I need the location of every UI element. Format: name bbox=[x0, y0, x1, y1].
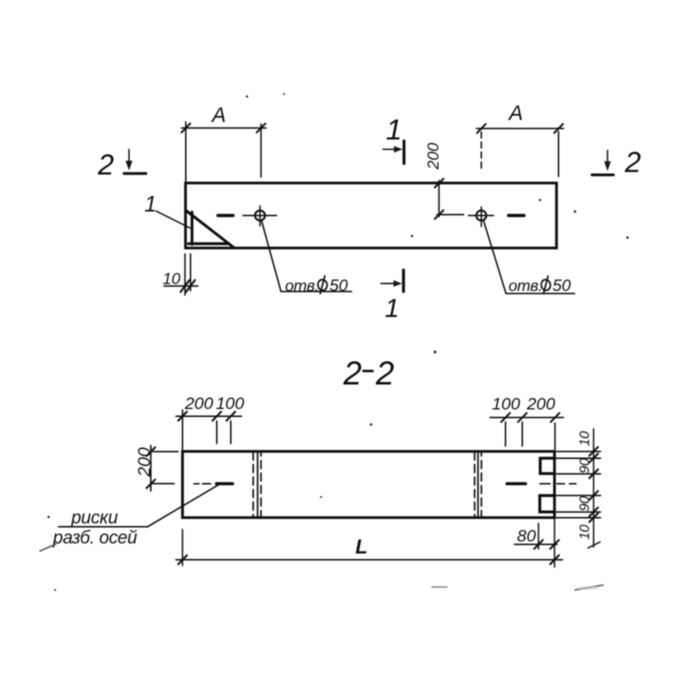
svg-text:10: 10 bbox=[576, 524, 592, 539]
svg-text:L: L bbox=[355, 537, 367, 559]
svg-text:отв.: отв. bbox=[285, 278, 319, 295]
svg-text:1: 1 bbox=[144, 192, 156, 217]
svg-text:90: 90 bbox=[576, 496, 592, 511]
svg-text:2: 2 bbox=[342, 355, 361, 392]
svg-text:10: 10 bbox=[163, 271, 181, 288]
svg-text:1: 1 bbox=[386, 115, 402, 147]
svg-text:200: 200 bbox=[526, 395, 556, 414]
svg-text:200: 200 bbox=[134, 447, 154, 477]
svg-text:2: 2 bbox=[375, 355, 394, 392]
svg-text:2: 2 bbox=[624, 147, 641, 179]
svg-text:50: 50 bbox=[553, 277, 572, 295]
svg-text:риски: риски bbox=[70, 508, 118, 528]
svg-text:отв.: отв. bbox=[509, 278, 543, 295]
svg-text:A: A bbox=[210, 104, 226, 127]
svg-text:200: 200 bbox=[426, 143, 443, 171]
svg-text:100: 100 bbox=[216, 394, 245, 413]
svg-text:80: 80 bbox=[517, 527, 536, 546]
svg-text:A: A bbox=[507, 102, 523, 125]
svg-text:разб. осей: разб. осей bbox=[52, 528, 137, 548]
svg-text:100: 100 bbox=[492, 395, 521, 414]
svg-text:1: 1 bbox=[385, 293, 399, 323]
svg-text:50: 50 bbox=[330, 277, 349, 295]
svg-text:200: 200 bbox=[184, 394, 214, 413]
svg-text:2: 2 bbox=[97, 150, 114, 182]
svg-text:90: 90 bbox=[576, 458, 592, 473]
svg-text:10: 10 bbox=[576, 431, 592, 446]
